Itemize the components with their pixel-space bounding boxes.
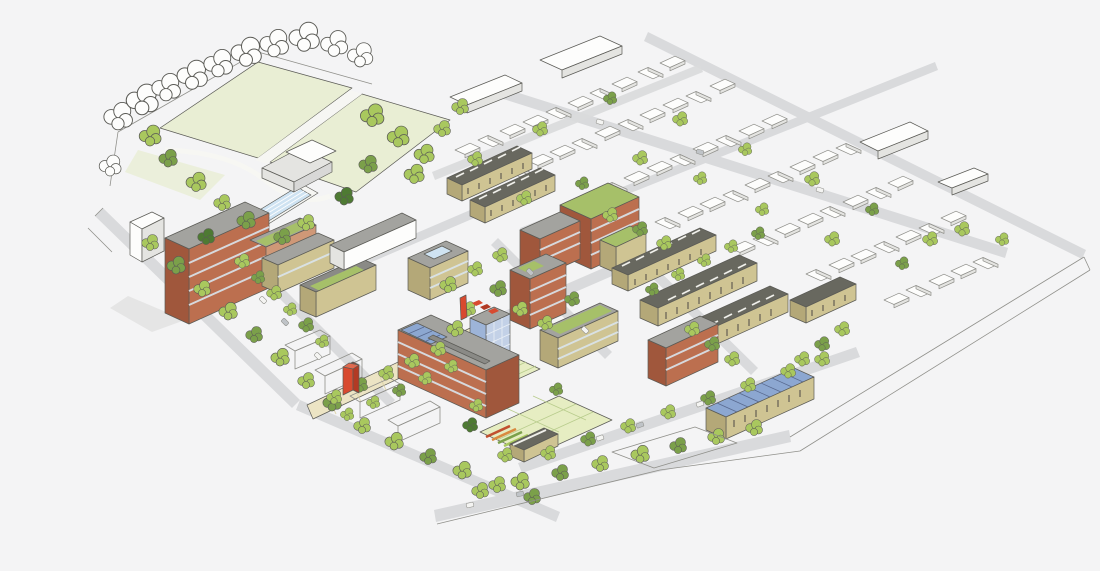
neighborhood-streets bbox=[432, 32, 1086, 259]
building-townrow-far-right bbox=[790, 277, 856, 323]
masterplan-illustration: Hand-drawn aerial masterplan rendering o… bbox=[0, 0, 1100, 571]
red-banner bbox=[460, 295, 467, 320]
building-white-slab bbox=[130, 212, 164, 262]
illustration-canvas: Hand-drawn aerial masterplan rendering o… bbox=[0, 0, 1100, 571]
building-rooftop-pool bbox=[408, 241, 468, 300]
building-grey-slab bbox=[330, 213, 416, 270]
buildings bbox=[110, 146, 856, 442]
building-brick-right bbox=[648, 316, 718, 386]
red-landmark-sculpture bbox=[343, 362, 359, 395]
